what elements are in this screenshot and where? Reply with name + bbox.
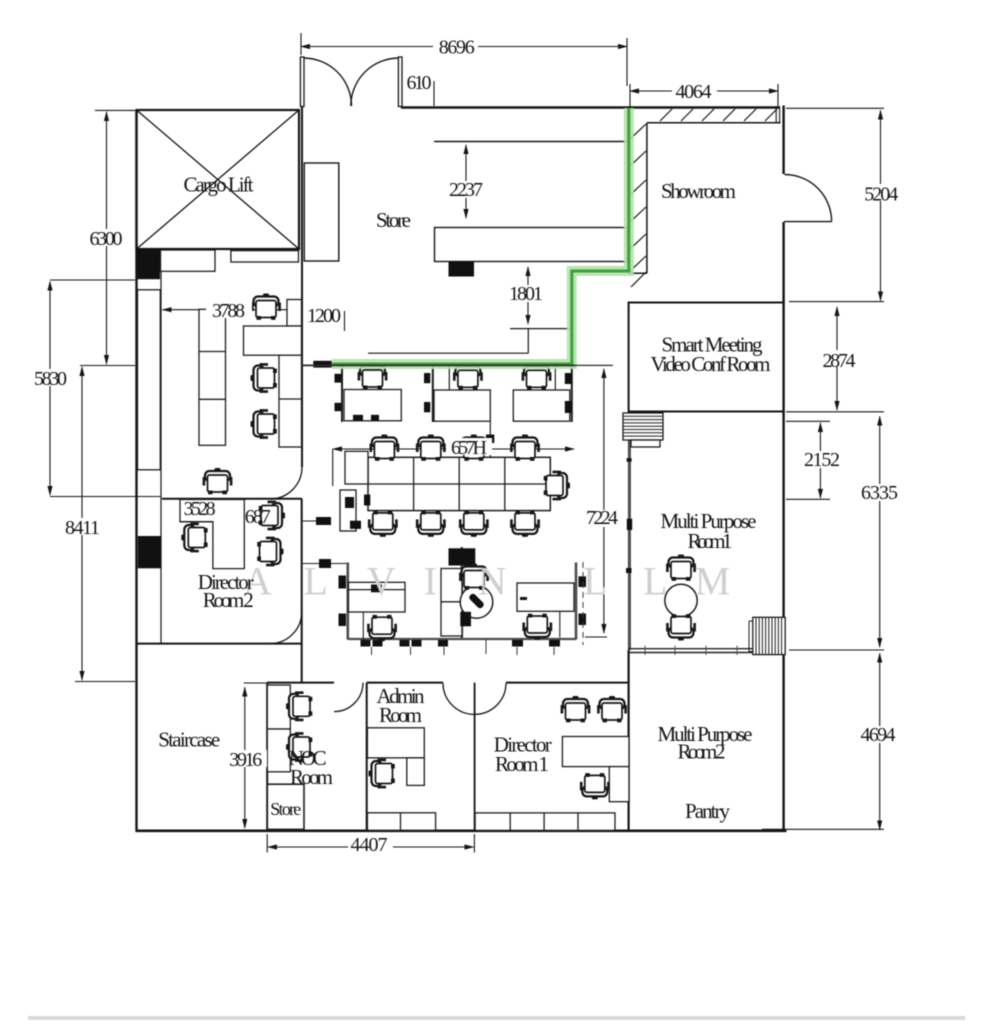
svg-text:L: L (583, 559, 607, 604)
svg-text:Room 1: Room 1 (495, 752, 549, 776)
svg-text:Cargo Lift: Cargo Lift (184, 173, 254, 197)
svg-text:3916: 3916 (229, 749, 262, 771)
svg-text:6300: 6300 (90, 228, 123, 250)
svg-text:2874: 2874 (823, 350, 856, 372)
svg-text:L: L (303, 559, 327, 604)
svg-text:Room: Room (379, 703, 422, 727)
svg-text:6335: 6335 (861, 482, 898, 504)
svg-text:Showroom: Showroom (661, 179, 736, 203)
svg-text:Store: Store (270, 799, 301, 819)
svg-text:Room: Room (290, 765, 333, 789)
svg-text:I: I (424, 559, 437, 604)
svg-text:1200: 1200 (307, 305, 341, 327)
svg-text:Staircase: Staircase (158, 728, 220, 752)
svg-text:Room 2: Room 2 (203, 588, 254, 612)
svg-text:Video Conf Room: Video Conf Room (651, 352, 771, 376)
svg-text:N: N (478, 559, 507, 604)
svg-text:3788: 3788 (212, 300, 245, 322)
svg-text:2152: 2152 (804, 449, 840, 471)
svg-text:Pantry: Pantry (685, 799, 731, 823)
svg-text:657H: 657H (451, 437, 487, 459)
svg-text:7224: 7224 (586, 507, 618, 529)
svg-text:1801: 1801 (509, 283, 543, 305)
svg-text:L: L (643, 559, 667, 604)
svg-text:4694: 4694 (861, 724, 896, 746)
svg-text:8696: 8696 (439, 37, 475, 59)
svg-text:5204: 5204 (864, 184, 898, 206)
svg-text:2237: 2237 (449, 179, 483, 201)
svg-text:4407: 4407 (351, 834, 388, 856)
svg-text:M: M (695, 559, 731, 604)
svg-text:V: V (367, 559, 396, 604)
svg-text:687: 687 (245, 506, 271, 528)
svg-text:Room 2: Room 2 (678, 740, 726, 764)
svg-text:5830: 5830 (34, 368, 67, 390)
svg-text:3528: 3528 (184, 498, 216, 520)
svg-text:Store: Store (376, 208, 411, 232)
svg-text:8411: 8411 (65, 517, 100, 539)
svg-text:610: 610 (407, 72, 432, 94)
svg-text:4064: 4064 (676, 81, 712, 103)
svg-text:Room 1: Room 1 (688, 529, 733, 553)
